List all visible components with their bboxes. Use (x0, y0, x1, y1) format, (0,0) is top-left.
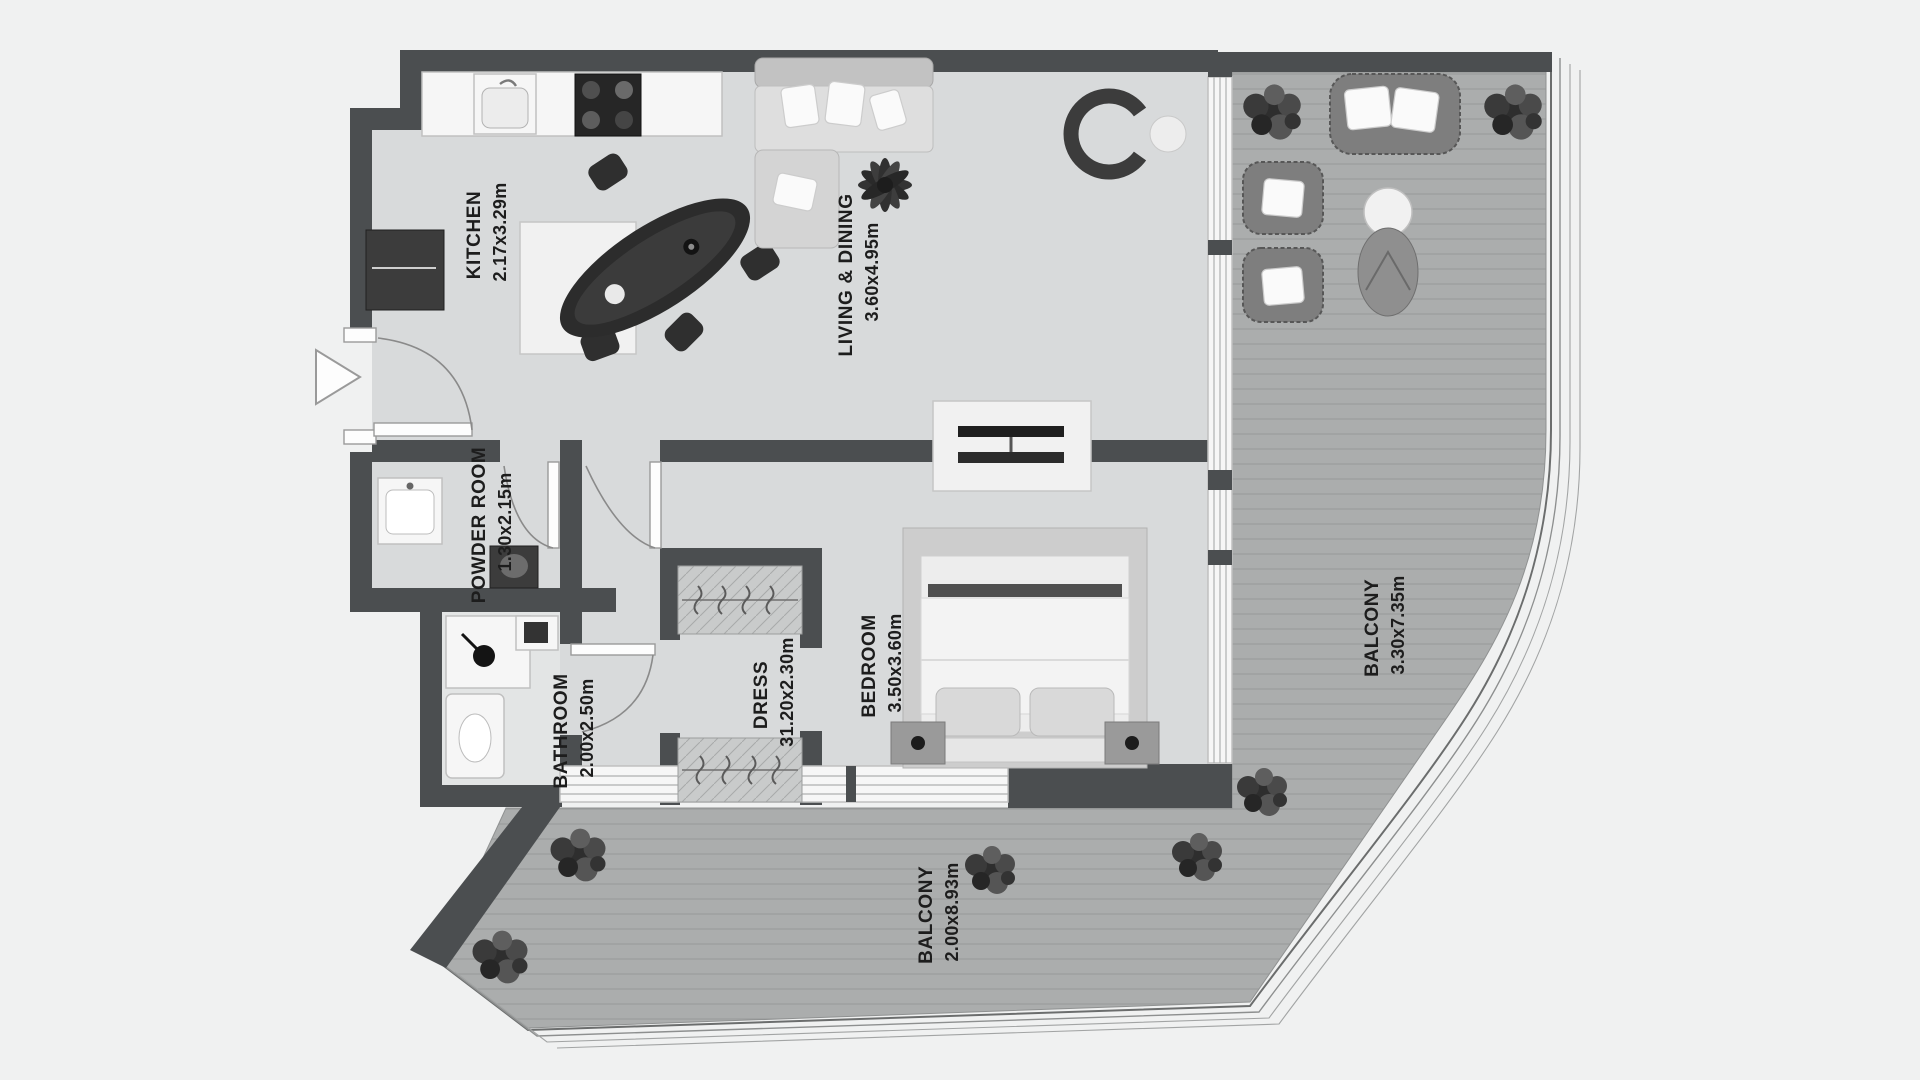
floor-plan-canvas: KITCHEN 2.17x3.29m LIVING & DINING 3.60x… (0, 0, 1920, 1080)
bed-foot-bench (928, 584, 1122, 597)
bed-pillow (936, 688, 1020, 736)
wall-bathroom-left (420, 612, 442, 787)
wall-right-top (1208, 52, 1232, 77)
window-mullion-2 (1208, 470, 1232, 490)
wall-bedroom-bottom (1008, 764, 1232, 808)
corridor-door-leaf (650, 462, 661, 548)
powder-door-leaf (548, 462, 559, 548)
powder-faucet (407, 483, 414, 490)
bathroom-sink-basin (524, 622, 548, 643)
bed-pillow (1030, 688, 1114, 736)
outdoor-sofa (1330, 74, 1460, 154)
wall-middle-jamb (560, 440, 582, 462)
wall-dress-left-a (660, 568, 680, 640)
outdoor-chair (1243, 248, 1323, 322)
kitchen-counter (422, 72, 722, 136)
wall-powder-right (560, 462, 582, 588)
powder-sink-basin (386, 490, 434, 534)
kitchen-sink-basin (482, 88, 528, 128)
window-mullion-3 (1208, 550, 1232, 565)
window-mullion-1 (1208, 240, 1232, 255)
wall-dress-right-a (800, 568, 822, 648)
shower-head (473, 645, 495, 667)
tv-unit (933, 401, 1091, 491)
entry-door-jamb-top (344, 328, 376, 342)
bathroom-door-leaf (571, 644, 655, 655)
stove-burner (582, 111, 600, 129)
wall-bathroom-bottom (420, 785, 562, 807)
bathtub-basin (459, 714, 491, 762)
stove-burner (615, 111, 633, 129)
window-bottom-mullion-2 (846, 766, 856, 802)
nightstand-lamp (1125, 736, 1139, 750)
nightstand-lamp (911, 736, 925, 750)
kitchen-fridge (366, 230, 444, 310)
wall-dress-top (660, 548, 822, 568)
kitchen-stove (575, 74, 641, 136)
stove-burner (582, 81, 600, 99)
wall-balcony-top (1218, 52, 1552, 72)
bed-headboard (916, 738, 1134, 762)
entry-door-jamb-bottom (344, 430, 376, 444)
floor-plan-page: KITCHEN 2.17x3.29m LIVING & DINING 3.60x… (0, 0, 1920, 1080)
egg-chair (1358, 188, 1418, 316)
entry-door-leaf (374, 423, 472, 436)
wall-bath-right-a (560, 612, 582, 644)
outdoor-chair (1243, 162, 1323, 234)
bedroom (891, 528, 1159, 768)
stove-burner (615, 81, 633, 99)
